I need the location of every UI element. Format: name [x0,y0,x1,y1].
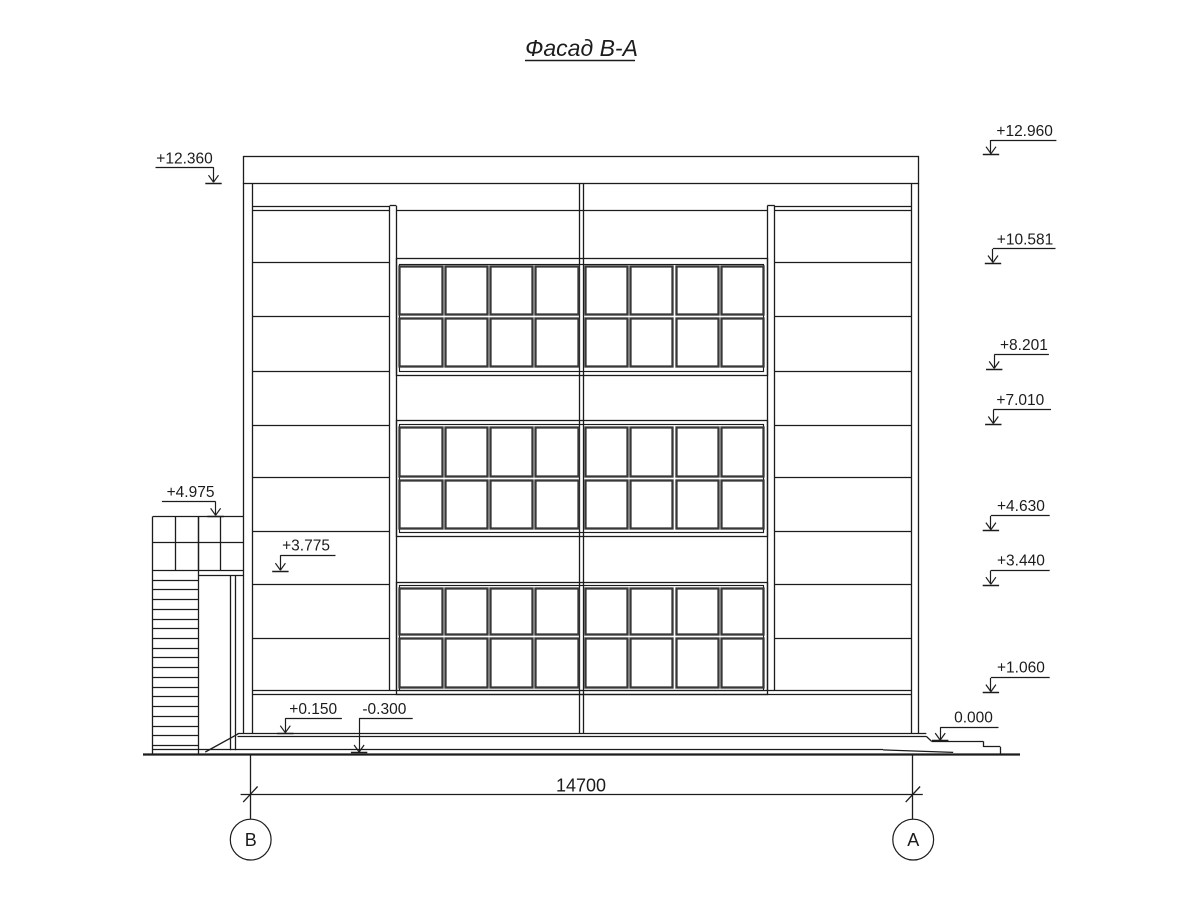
svg-text:В: В [245,830,257,850]
svg-text:+4.975: +4.975 [167,484,215,501]
svg-text:0.000: 0.000 [954,710,993,727]
svg-text:+3.440: +3.440 [997,552,1045,569]
svg-text:14700: 14700 [556,776,606,796]
svg-text:+12.960: +12.960 [996,123,1053,140]
svg-text:А: А [907,830,919,850]
svg-text:+1.060: +1.060 [997,660,1045,677]
svg-text:+3.775: +3.775 [282,538,330,555]
svg-text:+10.581: +10.581 [997,231,1053,248]
svg-text:+12.360: +12.360 [156,151,213,168]
svg-text:+7.010: +7.010 [996,392,1044,409]
svg-text:+4.630: +4.630 [997,498,1045,515]
svg-text:+0.150: +0.150 [289,701,337,718]
svg-text:-0.300: -0.300 [362,701,406,718]
svg-text:Фасад В-А: Фасад В-А [525,35,638,61]
svg-text:+8.201: +8.201 [1000,337,1048,354]
